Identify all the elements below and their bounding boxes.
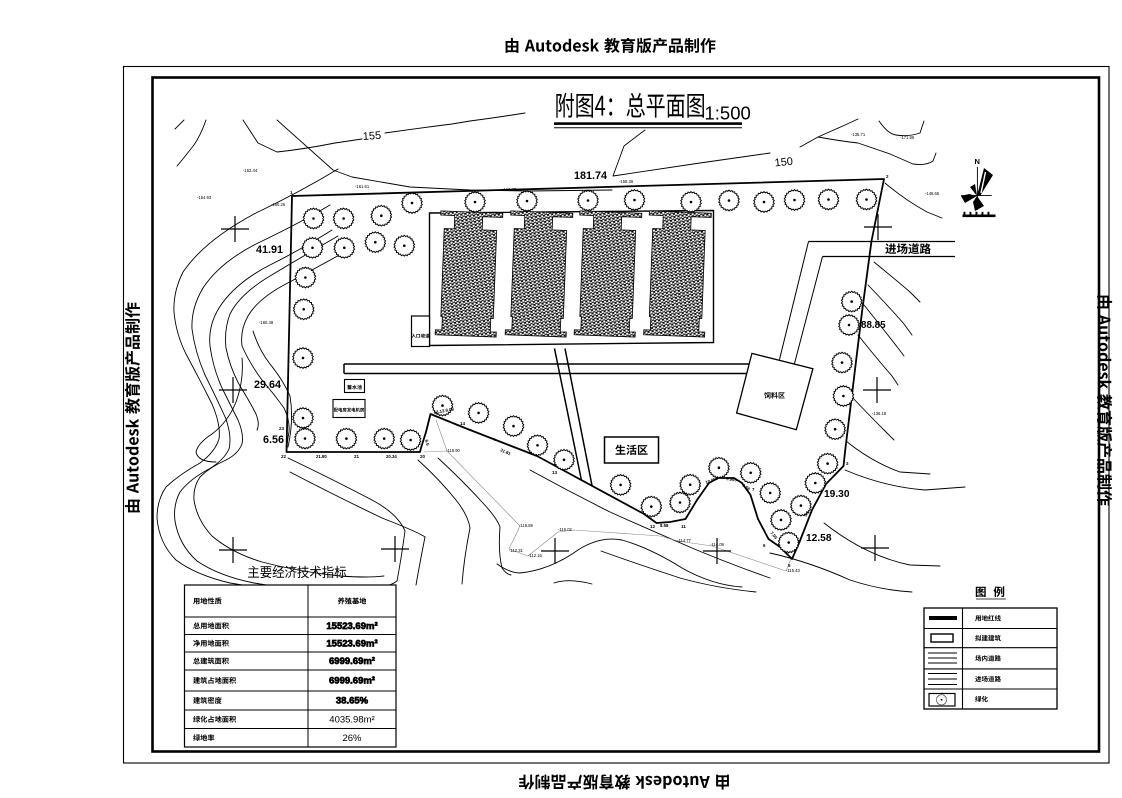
svg-text:-114.09: -114.09: [710, 542, 725, 547]
svg-text:19.30: 19.30: [824, 489, 850, 500]
svg-text:22: 22: [281, 454, 287, 459]
svg-text:4035.98m²: 4035.98m²: [329, 715, 374, 726]
svg-text:20.34: 20.34: [386, 454, 397, 459]
svg-text:15523.69m²: 15523.69m²: [326, 639, 377, 650]
svg-text:88.85: 88.85: [861, 320, 886, 331]
svg-text:-171.96: -171.96: [900, 135, 915, 140]
svg-text:-154.93: -154.93: [197, 195, 212, 200]
svg-text:12.58: 12.58: [806, 533, 832, 544]
svg-text:15523.69m²: 15523.69m²: [326, 621, 377, 632]
svg-text:150: 150: [774, 156, 794, 170]
svg-text:155: 155: [362, 130, 381, 143]
svg-text:23: 23: [279, 426, 285, 431]
svg-text:38.65%: 38.65%: [336, 696, 369, 707]
svg-text:11: 11: [681, 524, 686, 529]
svg-text:-118.90: -118.90: [446, 448, 461, 453]
svg-text:1:500: 1:500: [705, 103, 751, 124]
svg-text:6999.69m²: 6999.69m²: [329, 676, 375, 687]
svg-text:-112.16: -112.16: [528, 553, 543, 558]
svg-text:-115.43: -115.43: [786, 568, 801, 573]
svg-text:-116.69: -116.69: [519, 523, 534, 528]
svg-text:13: 13: [552, 470, 558, 475]
svg-text:-152.44: -152.44: [243, 168, 258, 173]
svg-text:26%: 26%: [342, 733, 362, 744]
svg-text:-136.18: -136.18: [872, 411, 887, 416]
svg-text:14: 14: [460, 421, 466, 426]
svg-text:-160.25: -160.25: [271, 202, 286, 207]
svg-text:-160.48: -160.48: [259, 320, 274, 325]
svg-text:20: 20: [420, 454, 426, 459]
svg-text:6.56: 6.56: [263, 434, 284, 446]
svg-text:12: 12: [650, 524, 656, 529]
svg-text:21.80: 21.80: [316, 454, 327, 459]
svg-text:181.74: 181.74: [574, 170, 607, 182]
svg-text:-116.02: -116.02: [558, 527, 573, 532]
svg-text:N: N: [975, 157, 980, 166]
svg-text:-162.87: -162.87: [502, 187, 517, 192]
svg-text:-161.61: -161.61: [355, 184, 370, 189]
svg-text:-158.36: -158.36: [619, 179, 634, 184]
svg-text:21: 21: [354, 454, 360, 459]
svg-text:29.64: 29.64: [254, 379, 281, 391]
svg-text:-135.71: -135.71: [851, 132, 866, 137]
svg-text:41.91: 41.91: [256, 244, 283, 256]
svg-text:8.58: 8.58: [660, 523, 669, 528]
svg-text:-146.65: -146.65: [925, 191, 940, 196]
svg-text:-112.31: -112.31: [509, 548, 524, 553]
svg-text:6999.69m²: 6999.69m²: [329, 656, 375, 667]
svg-text:-114.77: -114.77: [677, 538, 692, 543]
